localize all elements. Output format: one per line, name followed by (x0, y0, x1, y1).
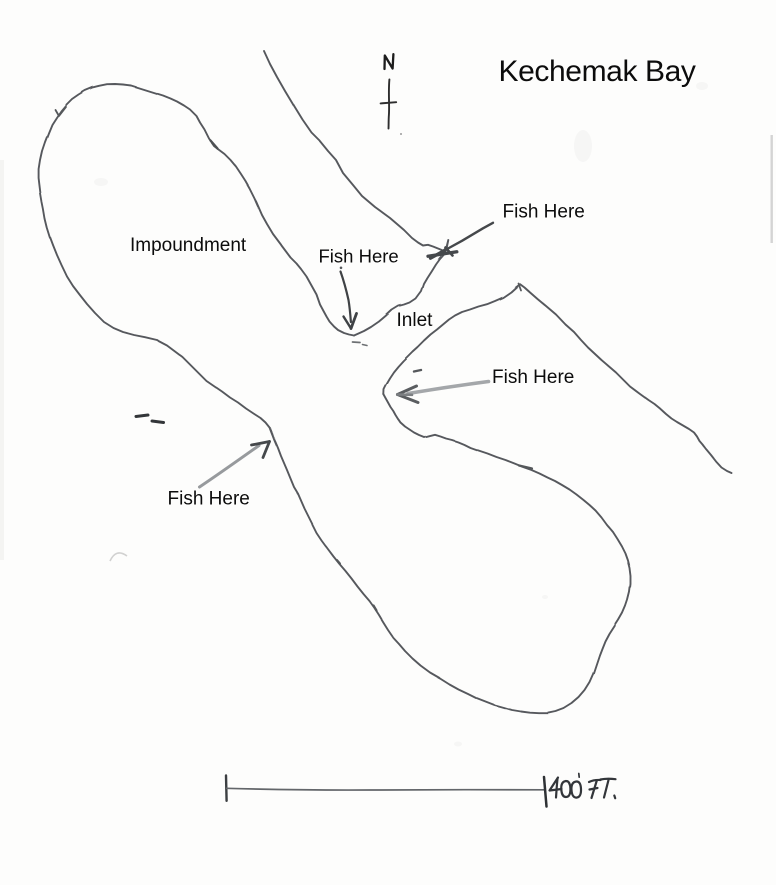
svg-text:Kechemak Bay: Kechemak Bay (499, 55, 696, 88)
svg-text:Fish Here: Fish Here (503, 202, 585, 223)
svg-text:Fish Here: Fish Here (168, 489, 250, 510)
svg-text:Impoundment: Impoundment (130, 235, 247, 256)
svg-text:Inlet: Inlet (397, 310, 434, 331)
svg-text:Fish Here: Fish Here (319, 246, 399, 267)
svg-text:Fish Here: Fish Here (492, 367, 574, 388)
